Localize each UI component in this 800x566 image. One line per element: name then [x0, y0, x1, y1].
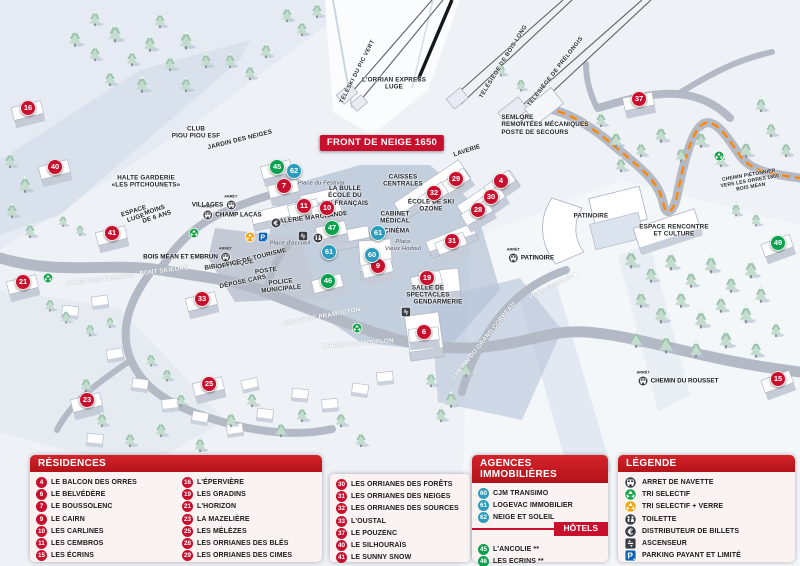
lift-icon	[624, 537, 637, 550]
map-marker-29[interactable]: 29	[448, 171, 464, 187]
residence-item[interactable]: 16 L'ÉPERVIÈRE	[182, 476, 318, 488]
residence-label: LE SUNNY SNOW	[351, 554, 411, 561]
legend-label: PARKING PAYANT ET LIMITÉ	[642, 552, 741, 559]
bus-stop-icon: ARRÊT	[202, 210, 213, 221]
bus-stop-icon: ARRÊT	[508, 253, 519, 264]
marker-badge: 61	[478, 500, 489, 511]
map-marker-21[interactable]: 21	[15, 274, 31, 290]
marker-badge: 9	[36, 514, 47, 525]
marker-badge: 21	[182, 501, 193, 512]
residence-item[interactable]: 19 LES GRADINS	[182, 488, 318, 500]
map-marker-61[interactable]: 61	[370, 225, 386, 241]
map-marker-6[interactable]: 6	[416, 324, 432, 340]
residences-list-col3: 30 LES ORRIANES DES FORÊTS 31 LES ORRIAN…	[330, 474, 470, 564]
bus-stop: BOIS MÉAN ET EMBRUNARRÊT	[143, 252, 231, 263]
tri-icon	[43, 273, 54, 284]
map-marker-7[interactable]: 7	[276, 178, 292, 194]
hotel-item[interactable]: 46 LES ECRINS **	[478, 555, 604, 566]
residence-item[interactable]: 41 LE SUNNY SNOW	[336, 552, 466, 564]
wc-icon	[313, 233, 324, 244]
residences-card-2: 30 LES ORRIANES DES FORÊTS 31 LES ORRIAN…	[330, 474, 470, 562]
residence-item[interactable]: 7 LE BOUSSOLENC	[36, 501, 172, 513]
legend-header: LÉGENDE	[618, 455, 795, 472]
map-label: SALLE DESPECTACLES	[406, 285, 449, 300]
map-marker-4[interactable]: 4	[493, 173, 509, 189]
arret-tag: ARRÊT	[201, 204, 214, 208]
legend-label: TRI SELECTIF	[642, 491, 690, 498]
arret-tag: ARRÊT	[507, 247, 520, 251]
marker-badge: 40	[336, 540, 347, 551]
hotel-label: LES ECRINS **	[493, 558, 544, 565]
legend-item: P PARKING PAYANT ET LIMITÉ	[624, 550, 791, 562]
legend-item: ASCENSEUR	[624, 537, 791, 549]
residence-label: LE CAIRN	[51, 516, 85, 523]
hotel-label: L'ANCOLIE **	[493, 546, 539, 553]
legend-item: TRI SELECTIF	[624, 488, 791, 500]
arret-tag: ARRÊT	[637, 370, 650, 374]
map-marker-40[interactable]: 40	[47, 159, 63, 175]
marker-badge: 28	[182, 538, 193, 549]
legend-list: ARRET DE NAVETTE TRI SELECTIF TRI SELECT…	[618, 472, 795, 562]
agence-label: LOGEVAC IMMOBILIER	[493, 502, 573, 509]
residence-label: LES MÉLÈZES	[197, 528, 247, 535]
hotel-item[interactable]: 45 L'ANCOLIE **	[478, 543, 604, 555]
map-label: TÉLÉSIÈGE DE PRÉLONGIS	[527, 36, 586, 109]
residence-item[interactable]: 9 LE CAIRN	[36, 513, 172, 525]
residence-item[interactable]: 32 LES ORRIANES DES SOURCES	[336, 503, 466, 515]
marker-badge: 16	[182, 477, 193, 488]
map-label: ROUTE DE PRAMOUTON	[283, 306, 361, 328]
residence-item[interactable]: 40 LE SILHOURAÏS	[336, 539, 466, 551]
map-marker-62[interactable]: 62	[286, 163, 302, 179]
marker-badge: 30	[336, 479, 347, 490]
residence-item[interactable]: 21 L'HORIZON	[182, 501, 318, 513]
marker-badge: 60	[478, 488, 489, 499]
map-label: PONT SKIEURS	[139, 264, 189, 277]
atm-icon: €	[271, 218, 282, 229]
parking-icon: P	[258, 232, 269, 243]
residence-item[interactable]: 30 LES ORRIANES DES FORÊTS	[336, 478, 466, 490]
residence-item[interactable]: 23 LA MAZELIÈRE	[182, 513, 318, 525]
legend-item: € DISTRIBUTEUR DE BILLETS	[624, 525, 791, 537]
marker-badge: 29	[182, 550, 193, 561]
legend-label: TOILETTE	[642, 516, 677, 523]
legend-label: TRI SELECTIF + VERRE	[642, 503, 723, 510]
map-marker-33[interactable]: 33	[194, 291, 210, 307]
atm-icon: €	[624, 525, 637, 538]
residence-label: LE SILHOURAÏS	[351, 542, 406, 549]
map-marker-19[interactable]: 19	[419, 270, 435, 286]
residence-label: LES CEMBROS	[51, 540, 103, 547]
residence-label: LA MAZELIÈRE	[197, 516, 250, 523]
map-label: CHEMIN PIÉTONNIERVERS LES ORRES 1800BOIS…	[719, 168, 780, 196]
residence-item[interactable]: 37 LE POUZENC	[336, 527, 466, 539]
bus-stop-icon: ARRÊT	[220, 252, 231, 263]
map-marker-15[interactable]: 15	[770, 371, 786, 387]
agence-label: NEIGE ET SOLEIL	[493, 514, 554, 521]
map-label: ALLÉE DES CHAMOIS	[65, 272, 135, 288]
agences-list: 60 CJM TRANSIMO 61 LOGEVAC IMMOBILIER 62…	[472, 483, 608, 524]
legend-label: ARRET DE NAVETTE	[642, 479, 713, 486]
residence-label: LES ORRIANES DES FORÊTS	[351, 481, 452, 488]
map-marker-37[interactable]: 37	[631, 91, 647, 107]
residence-label: L'ÉPERVIÈRE	[197, 479, 244, 486]
bus-stop-label: CHEMIN DU ROUSSET	[651, 378, 719, 385]
tri-icon	[714, 151, 725, 162]
map-label: CAISSESCENTRALES	[383, 174, 423, 189]
residence-item[interactable]: 10 LES CARLINES	[36, 525, 172, 537]
legend-label: DISTRIBUTEUR DE BILLETS	[642, 528, 739, 535]
bus-stop: ARRÊTCHAMP LACAS	[202, 210, 261, 221]
marker-badge: 41	[336, 552, 347, 563]
bus-stop-icon: ARRÊT	[638, 376, 649, 387]
map-marker-28[interactable]: 28	[470, 202, 486, 218]
bus-stop-label: PATINOIRE	[521, 255, 554, 262]
map-label: CHEMIN DU GRAND CORBEAU	[450, 301, 517, 381]
marker-badge: 45	[478, 544, 489, 555]
map-marker-41[interactable]: 41	[104, 225, 120, 241]
marker-badge: 23	[182, 514, 193, 525]
tri-verre-icon	[245, 232, 256, 243]
map-label: CINÉMA	[384, 227, 410, 234]
residence-label: L'HORIZON	[197, 503, 236, 510]
bus-stop-label: BOIS MÉAN ET EMBRUN	[143, 254, 218, 261]
tri-icon	[352, 323, 363, 334]
map-marker-16[interactable]: 16	[20, 100, 36, 116]
bus-icon	[624, 476, 637, 489]
residence-item[interactable]: 31 LES ORRIANES DES NEIGES	[336, 490, 466, 502]
bus-stop: ARRÊTCHEMIN DU ROUSSET	[638, 376, 719, 387]
marker-badge: 11	[36, 538, 47, 549]
front-de-neige-banner: FRONT DE NEIGE 1650	[320, 135, 444, 151]
residence-item[interactable]: 25 LES MÉLÈZES	[182, 525, 318, 537]
map-label: VERS EMBRUN ▶	[528, 270, 580, 302]
residence-label: LE BALCON DES ORRES	[51, 479, 137, 486]
residence-item[interactable]: 28 LES ORRIANES DES BLÉS	[182, 537, 318, 549]
legend-item: TRI SELECTIF + VERRE	[624, 501, 791, 513]
marker-badge: 19	[182, 489, 193, 500]
lift-icon	[401, 307, 412, 318]
map-marker-47[interactable]: 47	[324, 220, 340, 236]
map-label: LAVERIE	[453, 143, 482, 159]
wc-icon	[624, 513, 637, 526]
residence-label: LES CARLINES	[51, 528, 104, 535]
tri-icon	[189, 228, 200, 239]
map-label: HALTE GARDERIE«LES PITCHOUNETS»	[112, 175, 181, 190]
legend-item: TOILETTE	[624, 513, 791, 525]
agence-item[interactable]: 60 CJM TRANSIMO	[478, 487, 604, 499]
residence-label: LE BOUSSOLENC	[51, 503, 113, 510]
residence-label: LES ÉCRINS	[51, 552, 94, 559]
map-marker-10[interactable]: 10	[319, 200, 335, 216]
lift-icon	[298, 231, 309, 242]
map-label: TÉLÉSIÈGE DE BOIS LONG	[479, 24, 530, 100]
hotels-list: 45 L'ANCOLIE ** 46 LES ECRINS ** 47 L'ES…	[472, 539, 608, 566]
map-marker-31[interactable]: 31	[444, 233, 460, 249]
marker-badge: 7	[36, 501, 47, 512]
legend-item: ARRET DE NAVETTE	[624, 476, 791, 488]
map-label: Place du Festival	[298, 181, 345, 188]
map-label: CLUBPIOU PIOU ESF	[172, 126, 221, 141]
map-label: CHEMIN DU MOUFLON	[322, 337, 394, 351]
map-label: L'ORRIAN EXPRESSLUGE	[362, 77, 426, 92]
legend-card: LÉGENDE ARRET DE NAVETTE TRI SELECTIF TR…	[618, 455, 795, 562]
map-marker-32[interactable]: 32	[426, 185, 442, 201]
residence-item[interactable]: 15 LES ÉCRINS	[36, 550, 172, 562]
marker-badge: 6	[36, 489, 47, 500]
map-marker-25[interactable]: 25	[201, 376, 217, 392]
marker-badge: 4	[36, 477, 47, 488]
marker-badge: 10	[36, 526, 47, 537]
map-marker-46[interactable]: 46	[320, 273, 336, 289]
marker-badge: 32	[336, 503, 347, 514]
map-label: GENDARMERIE	[414, 298, 463, 305]
map-marker-11[interactable]: 11	[296, 198, 312, 214]
agence-item[interactable]: 61 LOGEVAC IMMOBILIER	[478, 499, 604, 511]
marker-badge: 46	[478, 556, 489, 566]
agence-label: CJM TRANSIMO	[493, 490, 548, 497]
map-marker-49[interactable]: 49	[770, 235, 786, 251]
residence-label: LES ORRIANES DES BLÉS	[197, 540, 289, 547]
map-label: PATINOIRE	[574, 212, 609, 219]
map-marker-23[interactable]: 23	[79, 392, 95, 408]
residence-label: LES ORRIANES DES NEIGES	[351, 493, 451, 500]
marker-badge: 37	[336, 528, 347, 539]
map-label: Place d'accueil	[270, 241, 311, 248]
residence-item[interactable]: 33 L'OUSTAL	[336, 515, 466, 527]
residences-list-col2: 16 L'ÉPERVIÈRE 19 LES GRADINS 21 L'HORIZ…	[176, 472, 322, 562]
bus-stop-label: CHAMP LACAS	[215, 212, 261, 219]
residence-label: LES ORRIANES DES SOURCES	[351, 505, 459, 512]
svg-text:P: P	[627, 551, 633, 561]
arret-tag: ARRÊT	[224, 194, 237, 198]
arret-tag: ARRÊT	[219, 246, 232, 250]
svg-text:€: €	[627, 527, 633, 536]
residence-item[interactable]: 29 LES ORRIANES DES CIMES	[182, 550, 318, 562]
svg-text:P: P	[260, 235, 265, 242]
map-marker-45[interactable]: 45	[269, 159, 285, 175]
agences-hotels-card: AGENCES IMMOBILIÈRES 60 CJM TRANSIMO 61 …	[472, 455, 608, 562]
residence-label: LE BELVÉDÈRE	[51, 491, 105, 498]
map-label: ESPACE RENCONTREET CULTURE	[639, 224, 708, 239]
map-marker-30[interactable]: 30	[483, 189, 499, 205]
map-label: PlaceVieux Hodoul	[385, 239, 421, 253]
residence-item[interactable]: 4 LE BALCON DES ORRES	[36, 476, 172, 488]
parking-icon: P	[624, 549, 637, 562]
legend-label: ASCENSEUR	[642, 540, 687, 547]
residences-header: RÉSIDENCES	[30, 455, 322, 472]
marker-badge: 33	[336, 516, 347, 527]
marker-badge: 62	[478, 512, 489, 523]
residence-label: LES GRADINS	[197, 491, 246, 498]
map-label: ÉCOLE DE SKIOZONE	[408, 199, 454, 214]
resort-map: TÉLÉSKI DU PIC VERTL'ORRIAN EXPRESSLUGET…	[0, 0, 800, 566]
agences-header: AGENCES IMMOBILIÈRES	[472, 455, 608, 483]
map-marker-60[interactable]: 60	[364, 247, 380, 263]
hotels-divider: HÔTELS	[472, 528, 608, 538]
tri-icon	[624, 488, 637, 501]
map-label: TÉLÉSKI DU PIC VERT	[339, 39, 377, 105]
tri-verre-icon	[624, 500, 637, 513]
marker-badge: 15	[36, 550, 47, 561]
residences-list-col1: 4 LE BALCON DES ORRES 6 LE BELVÉDÈRE 7 L…	[30, 472, 176, 562]
marker-badge: 31	[336, 491, 347, 502]
map-label: DÉPOSE CARS	[219, 273, 267, 290]
residence-label: LES ORRIANES DES CIMES	[197, 552, 292, 559]
residence-item[interactable]: 6 LE BELVÉDÈRE	[36, 488, 172, 500]
residence-label: LE POUZENC	[351, 530, 397, 537]
residence-item[interactable]: 11 LES CEMBROS	[36, 537, 172, 549]
hotels-header: HÔTELS	[554, 522, 608, 536]
bus-stop: ARRÊTPATINOIRE	[508, 253, 554, 264]
map-label: CABINETMÉDICAL	[380, 211, 410, 226]
map-label: SEMLOREREMONTÉES MÉCANIQUESPOSTE DE SECO…	[501, 114, 588, 136]
svg-text:€: €	[273, 219, 279, 227]
marker-badge: 25	[182, 526, 193, 537]
map-marker-61[interactable]: 61	[321, 244, 337, 260]
residences-card: RÉSIDENCES 4 LE BALCON DES ORRES 6 LE BE…	[30, 455, 322, 562]
residence-label: L'OUSTAL	[351, 518, 386, 525]
